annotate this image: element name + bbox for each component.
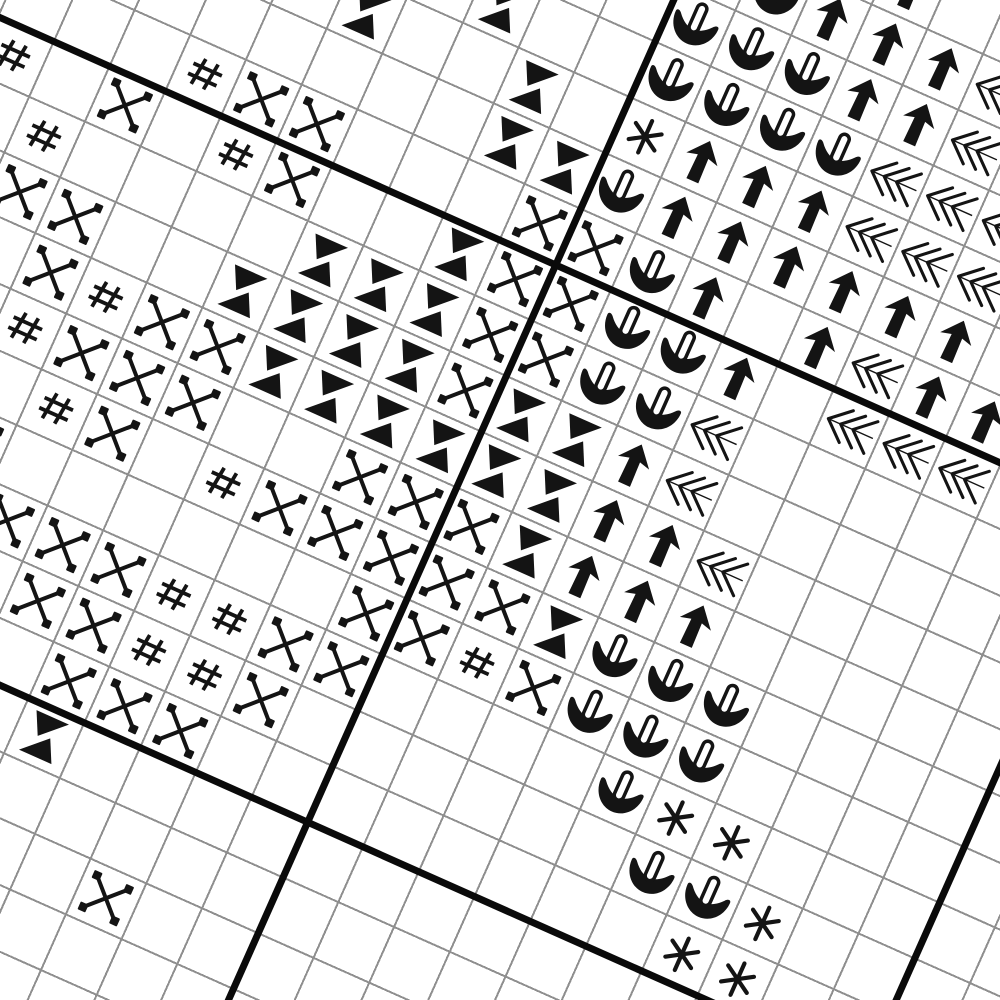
stitch-chart-canvas — [0, 0, 1000, 1000]
hourglass-stitch-icon — [502, 55, 565, 118]
jack-cross-stitch-icon — [228, 666, 294, 732]
jack-cross-stitch-icon — [259, 146, 325, 212]
hourglass-stitch-icon — [12, 705, 75, 768]
hash-stitch-icon — [16, 108, 71, 163]
hash-stitch-icon — [177, 647, 232, 702]
hash-stitch-icon — [208, 127, 263, 182]
asterisk-stitch-icon — [733, 894, 791, 952]
hash-stitch-icon — [29, 380, 84, 435]
jack-cross-stitch-icon — [147, 697, 213, 763]
hash-stitch-icon — [202, 591, 257, 646]
asterisk-stitch-icon — [616, 107, 674, 165]
asterisk-stitch-icon — [646, 788, 704, 846]
hash-stitch-icon — [78, 269, 133, 324]
jack-cross-stitch-icon — [79, 400, 145, 466]
hash-stitch-icon — [196, 455, 251, 510]
hash-stitch-icon — [0, 300, 53, 355]
jack-cross-stitch-icon — [308, 636, 374, 702]
jack-cross-stitch-icon — [73, 865, 139, 931]
asterisk-stitch-icon — [708, 949, 766, 1000]
hash-stitch-icon — [0, 27, 41, 82]
hash-stitch-icon — [450, 635, 505, 690]
hash-stitch-icon — [146, 566, 201, 621]
hash-stitch-icon — [121, 622, 176, 677]
asterisk-stitch-icon — [702, 813, 760, 871]
jack-cross-stitch-icon — [92, 72, 158, 138]
hash-stitch-icon — [177, 46, 232, 101]
asterisk-stitch-icon — [652, 925, 710, 983]
